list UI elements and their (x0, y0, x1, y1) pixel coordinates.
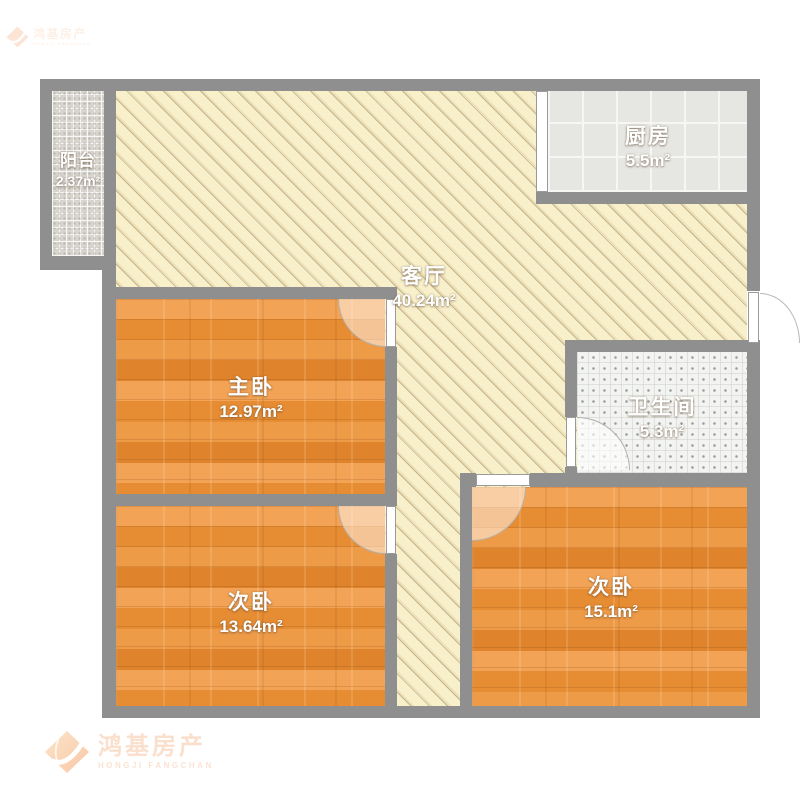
watermark-logo-icon (6, 26, 29, 48)
watermark-text: 鸿基房产 HONGJI FANGCHAN (98, 735, 214, 770)
wall-bottom (102, 706, 760, 718)
room-label-living-room: 客厅 40.24m² (392, 264, 455, 312)
watermark-company-en: HONGJI FANGCHAN (33, 42, 91, 46)
room-name: 客厅 (392, 264, 455, 290)
wall-master-bottom (102, 494, 397, 506)
room-area: 5.3m² (628, 421, 697, 442)
bathroom-door-leaf (566, 417, 576, 467)
watermark-logo-icon (44, 730, 90, 774)
room-area: 13.64m² (219, 616, 282, 637)
room-name: 次卧 (219, 590, 282, 616)
entrance-door-leaf (748, 292, 759, 343)
watermark-company-cn: 鸿基房产 (98, 735, 214, 759)
wall-master-top (102, 287, 397, 299)
room-name: 阳台 (56, 150, 100, 172)
wall-kitchen-bottom (536, 192, 760, 204)
wall-mid-vertical-upper (385, 347, 397, 494)
wall-bedroom-right-left (460, 473, 472, 706)
room-label-kitchen: 厨房 5.5m² (625, 124, 671, 172)
wall-balcony-right (104, 79, 116, 270)
room-label-second-bedroom-left: 次卧 13.64m² (219, 590, 282, 638)
room-area: 5.5m² (625, 150, 671, 171)
wall-left-main (102, 256, 116, 718)
room-label-second-bedroom-right: 次卧 15.1m² (584, 575, 638, 623)
floor-plan: 阳台 2.37m² 客厅 40.24m² 厨房 5.5m² 主卧 12.97m²… (0, 0, 800, 800)
watermark-text: 鸿基房产 HONGJI FANGCHAN (33, 28, 91, 46)
watermark-company-cn: 鸿基房产 (33, 28, 91, 40)
room-area: 2.37m² (56, 172, 100, 190)
room-name: 主卧 (219, 375, 282, 401)
room-name: 次卧 (584, 575, 638, 601)
wall-bathroom-top (565, 340, 760, 352)
room-label-master-bedroom: 主卧 12.97m² (219, 375, 282, 423)
wall-bathroom-left-upper (565, 352, 577, 417)
room-area: 15.1m² (584, 601, 638, 622)
wall-balcony-left (40, 79, 52, 270)
room-name: 卫生间 (628, 395, 697, 421)
wall-right-upper (747, 79, 760, 291)
watermark: 鸿基房产 HONGJI FANGCHAN (44, 730, 214, 774)
room-area: 12.97m² (219, 401, 282, 422)
wall-bedroom-right-top-b (530, 473, 760, 487)
entrance-door-arc (760, 293, 800, 343)
room-label-bathroom: 卫生间 5.3m² (628, 395, 697, 443)
second-bedroom-left-door-leaf (386, 506, 396, 554)
second-bedroom-right-door-leaf (476, 474, 530, 486)
watermark-company-en: HONGJI FANGCHAN (98, 762, 214, 770)
wall-top (40, 79, 760, 91)
kitchen-opening (536, 91, 548, 192)
wall-mid-vertical-lower (385, 554, 397, 706)
room-label-balcony: 阳台 2.37m² (56, 150, 100, 190)
wall-right-lower (747, 344, 760, 718)
room-name: 厨房 (625, 124, 671, 150)
room-area: 40.24m² (392, 290, 455, 311)
watermark-small: 鸿基房产 HONGJI FANGCHAN (6, 26, 91, 48)
